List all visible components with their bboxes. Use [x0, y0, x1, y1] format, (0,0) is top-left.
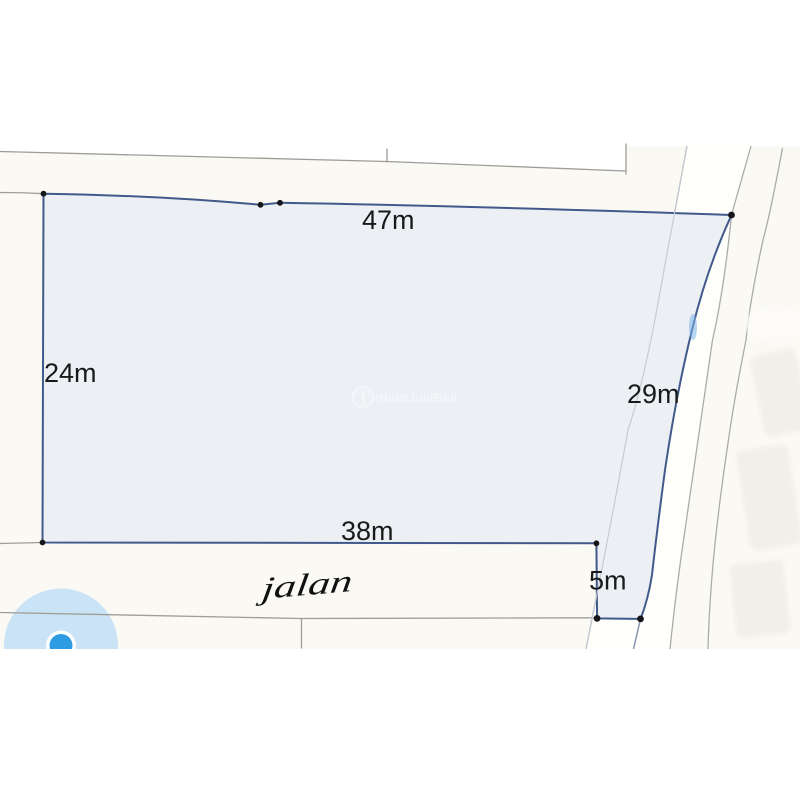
- svg-text:5m: 5m: [589, 566, 627, 596]
- svg-text:29m: 29m: [627, 379, 680, 409]
- svg-text:38m: 38m: [341, 516, 394, 546]
- svg-text:47m: 47m: [362, 205, 415, 235]
- svg-text:ribunJualBeli: ribunJualBeli: [375, 390, 457, 405]
- svg-text:24m: 24m: [44, 358, 97, 388]
- svg-text:T: T: [357, 388, 370, 409]
